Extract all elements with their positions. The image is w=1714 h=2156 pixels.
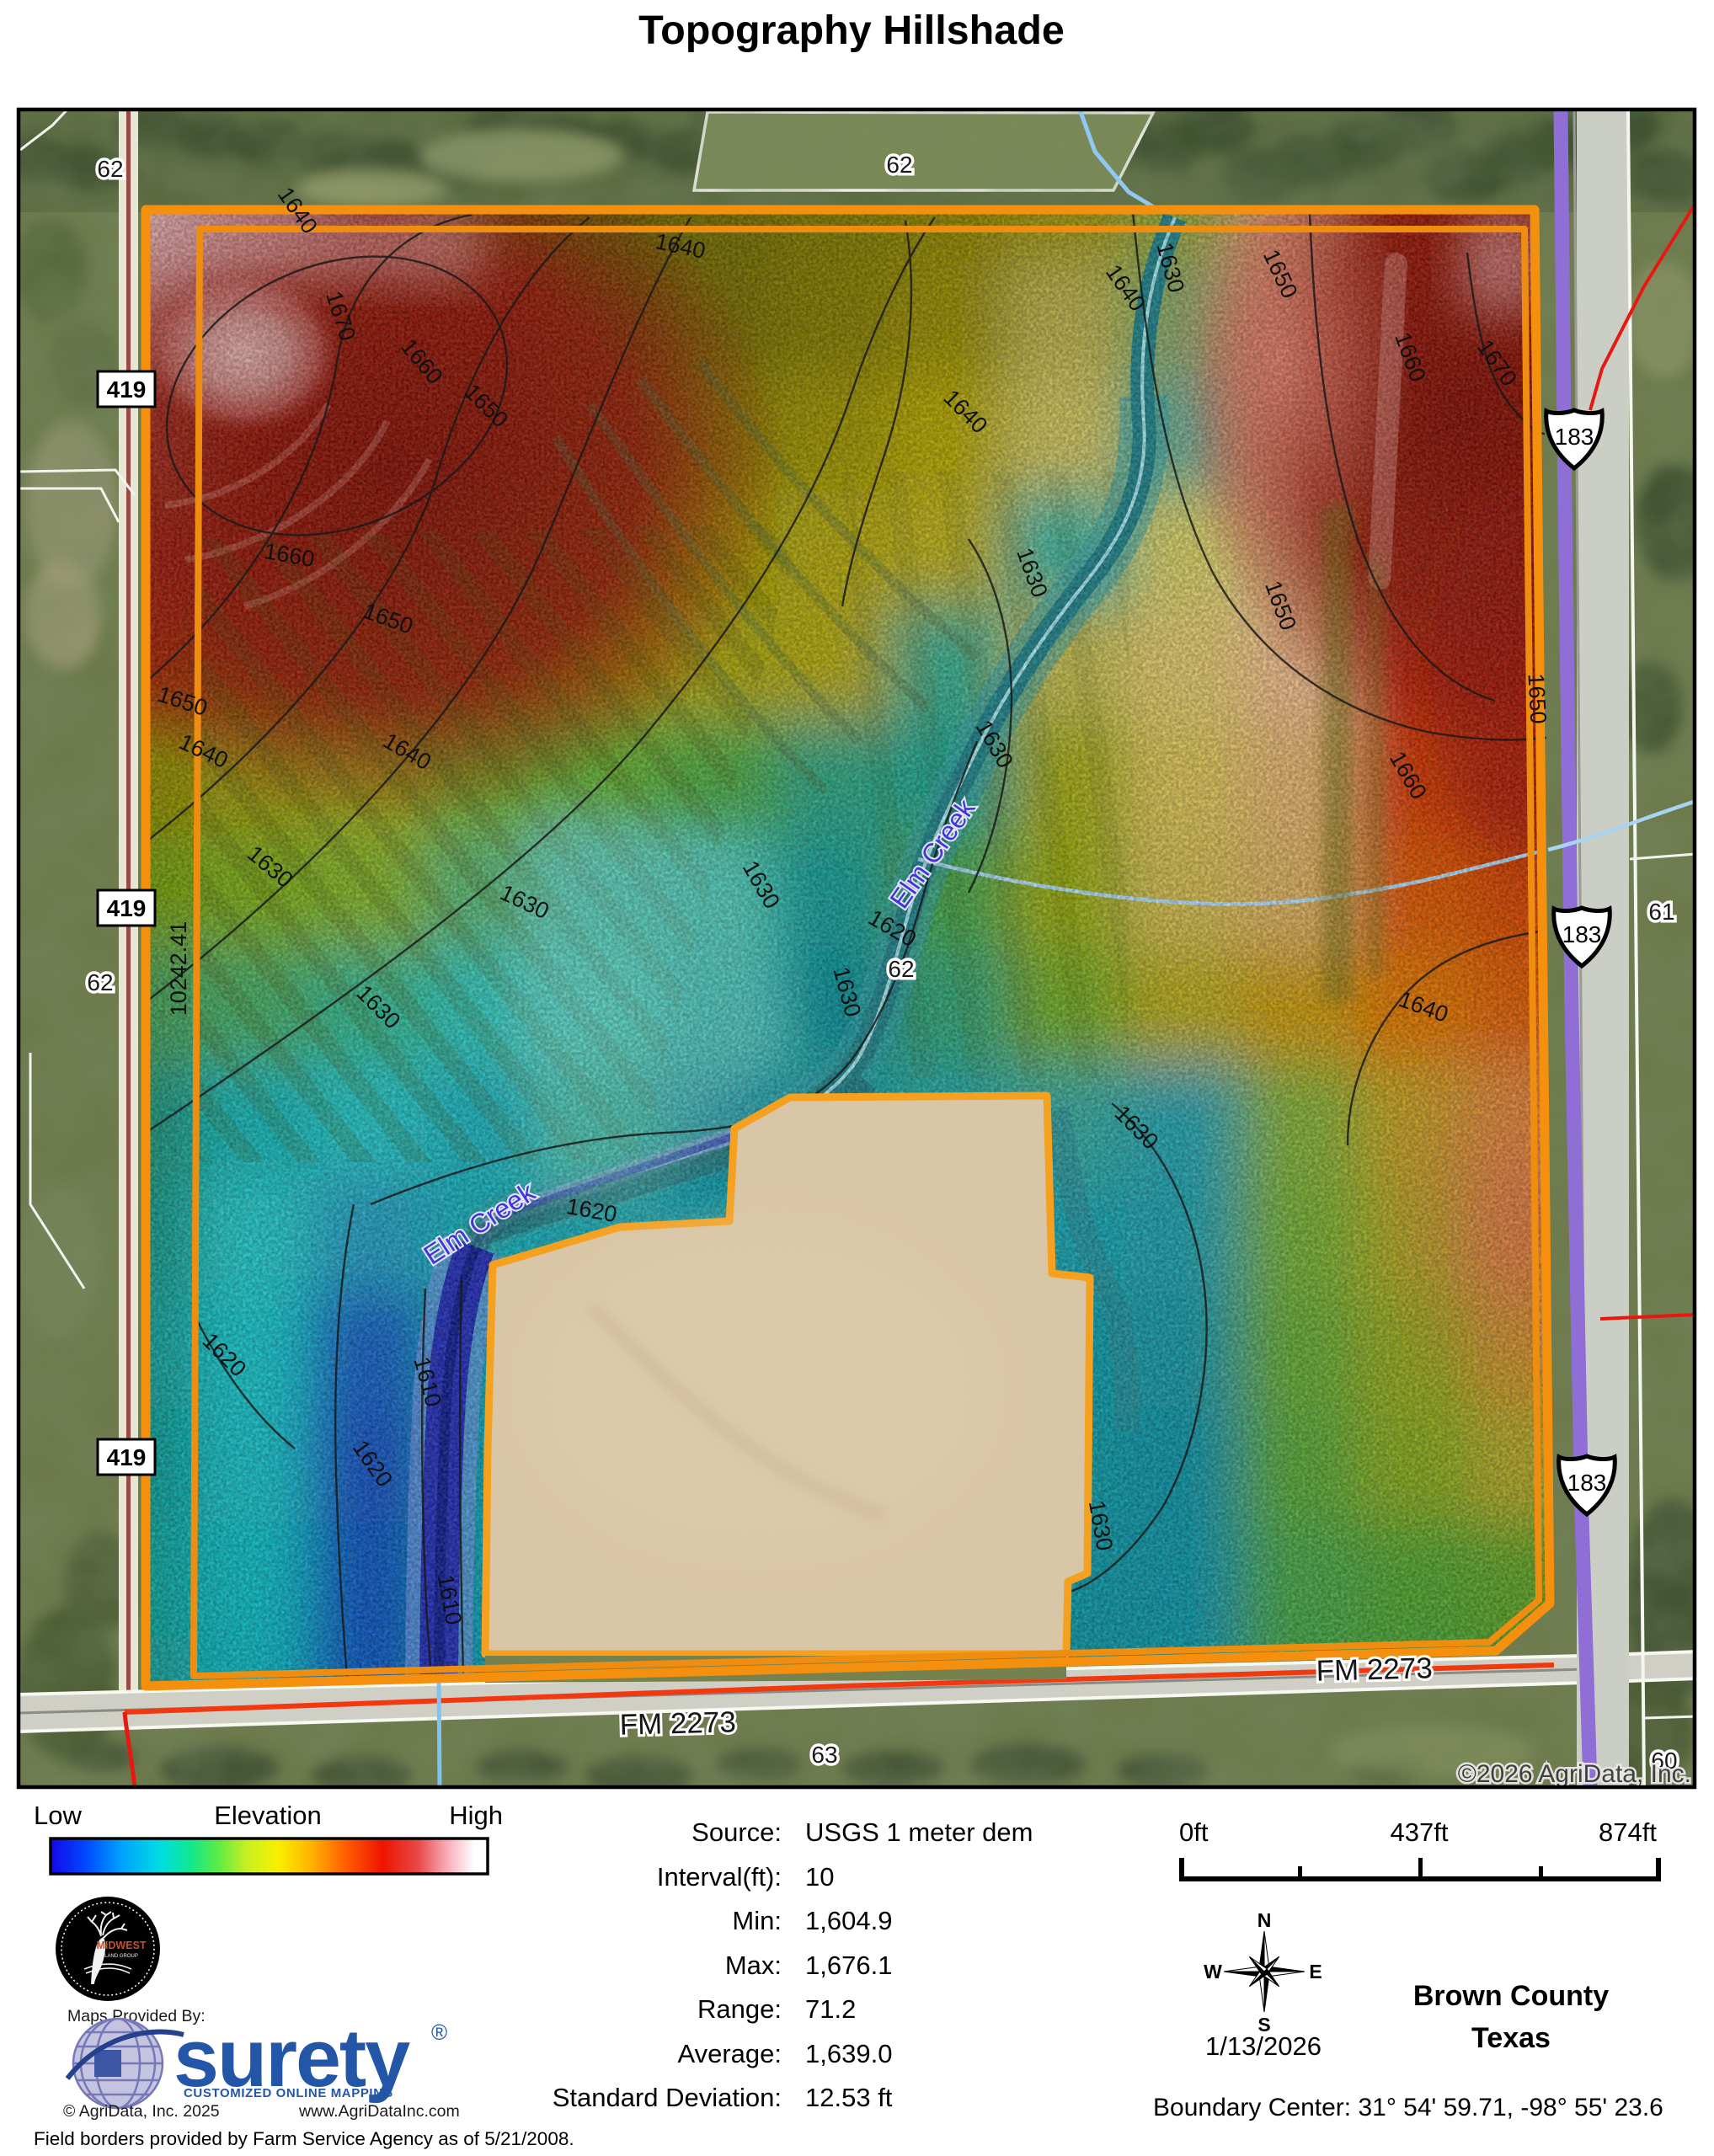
svg-text:62: 62 (97, 156, 123, 182)
svg-text:Low: Low (34, 1801, 82, 1830)
svg-text:E: E (1309, 1961, 1322, 1983)
svg-text:71.2: 71.2 (805, 1994, 856, 2024)
svg-text:419: 419 (107, 376, 147, 403)
svg-text:LAND GROUP: LAND GROUP (104, 1954, 138, 1959)
svg-text:USGS 1 meter dem: USGS 1 meter dem (805, 1817, 1033, 1847)
svg-text:874ft: 874ft (1599, 1817, 1657, 1847)
svg-text:62: 62 (886, 152, 912, 178)
svg-text:Source:: Source: (691, 1817, 782, 1847)
svg-text:62: 62 (87, 969, 113, 995)
svg-text:FM 2273: FM 2273 (1316, 1652, 1433, 1688)
svg-text:10242.41: 10242.41 (166, 921, 191, 1017)
svg-text:www.AgriDataInc.com: www.AgriDataInc.com (298, 2102, 460, 2121)
svg-text:N: N (1257, 1909, 1272, 1931)
svg-text:Topography Hillshade: Topography Hillshade (638, 8, 1065, 53)
svg-text:© AgriData, Inc. 2025: © AgriData, Inc. 2025 (63, 2102, 220, 2121)
svg-text:W: W (1204, 1961, 1222, 1983)
svg-text:Standard Deviation:: Standard Deviation: (553, 2083, 782, 2112)
svg-text:High: High (449, 1801, 503, 1830)
svg-text:1650: 1650 (1523, 673, 1551, 725)
svg-text:61: 61 (1648, 899, 1674, 925)
svg-text:12.53 ft: 12.53 ft (805, 2083, 893, 2112)
svg-text:Elevation: Elevation (214, 1801, 322, 1830)
svg-text:Brown County: Brown County (1413, 1980, 1609, 2012)
svg-text:Average:: Average: (677, 2039, 782, 2068)
svg-text:419: 419 (107, 895, 147, 921)
svg-text:63: 63 (811, 1742, 837, 1768)
svg-text:Min:: Min: (732, 1906, 782, 1935)
svg-text:Max:: Max: (725, 1951, 782, 1980)
svg-text:10: 10 (805, 1862, 834, 1892)
svg-text:Texas: Texas (1471, 2022, 1551, 2054)
svg-text:1/13/2026: 1/13/2026 (1205, 2031, 1322, 2061)
svg-text:183: 183 (1562, 921, 1602, 947)
svg-text:CUSTOMIZED ONLINE MAPPING: CUSTOMIZED ONLINE MAPPING (184, 2086, 393, 2100)
svg-text:Field borders provided by Farm: Field borders provided by Farm Service A… (34, 2128, 574, 2149)
svg-text:©2026 AgriData, Inc.: ©2026 AgriData, Inc. (1458, 1760, 1691, 1788)
svg-text:1,604.9: 1,604.9 (805, 1906, 892, 1935)
svg-text:®: ® (431, 2020, 447, 2045)
svg-text:Boundary Center: 31° 54' 59.71: Boundary Center: 31° 54' 59.71, -98° 55'… (1153, 2094, 1663, 2121)
svg-text:0ft: 0ft (1179, 1817, 1209, 1847)
svg-text:Range:: Range: (697, 1994, 782, 2024)
svg-text:1,676.1: 1,676.1 (805, 1951, 892, 1980)
svg-text:183: 183 (1555, 424, 1594, 450)
svg-text:FM 2273: FM 2273 (619, 1705, 736, 1742)
svg-text:437ft: 437ft (1391, 1817, 1449, 1847)
svg-text:Interval(ft):: Interval(ft): (657, 1862, 782, 1892)
svg-text:62: 62 (888, 956, 914, 982)
svg-text:183: 183 (1567, 1470, 1607, 1496)
svg-text:MIDWEST: MIDWEST (96, 1940, 146, 1951)
svg-text:419: 419 (107, 1444, 147, 1470)
svg-text:1,639.0: 1,639.0 (805, 2039, 892, 2068)
